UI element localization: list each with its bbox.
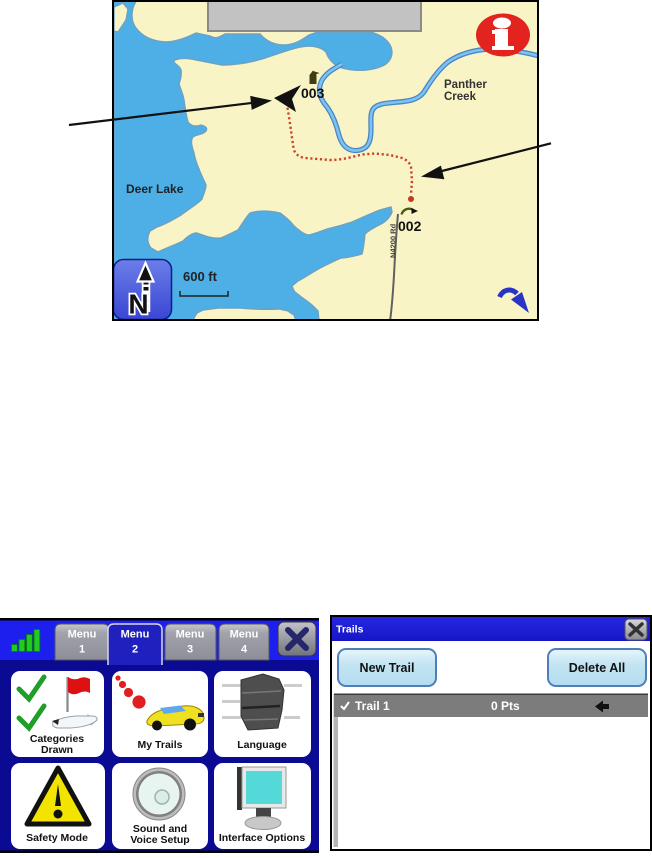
svg-text:Interface Options: Interface Options bbox=[219, 832, 306, 844]
svg-text:Menu: Menu bbox=[176, 629, 205, 641]
svg-text:My Trails: My Trails bbox=[138, 739, 183, 751]
svg-text:Menu: Menu bbox=[121, 629, 150, 641]
svg-text:Trail 1: Trail 1 bbox=[355, 699, 390, 713]
svg-text:0 Pts: 0 Pts bbox=[491, 699, 520, 713]
svg-text:Safety Mode: Safety Mode bbox=[26, 832, 88, 844]
svg-text:Menu: Menu bbox=[68, 629, 97, 641]
svg-text:New Trail: New Trail bbox=[360, 661, 415, 675]
svg-text:Menu: Menu bbox=[230, 629, 259, 641]
svg-text:Language: Language bbox=[237, 739, 287, 751]
svg-text:1: 1 bbox=[79, 644, 85, 656]
svg-text:2: 2 bbox=[132, 644, 138, 656]
svg-text:Drawn: Drawn bbox=[41, 744, 73, 756]
svg-text:Trails: Trails bbox=[336, 624, 364, 636]
svg-text:4: 4 bbox=[241, 644, 248, 656]
svg-text:Delete All: Delete All bbox=[569, 661, 626, 675]
svg-text:3: 3 bbox=[187, 644, 193, 656]
svg-text:Voice Setup: Voice Setup bbox=[130, 834, 189, 846]
